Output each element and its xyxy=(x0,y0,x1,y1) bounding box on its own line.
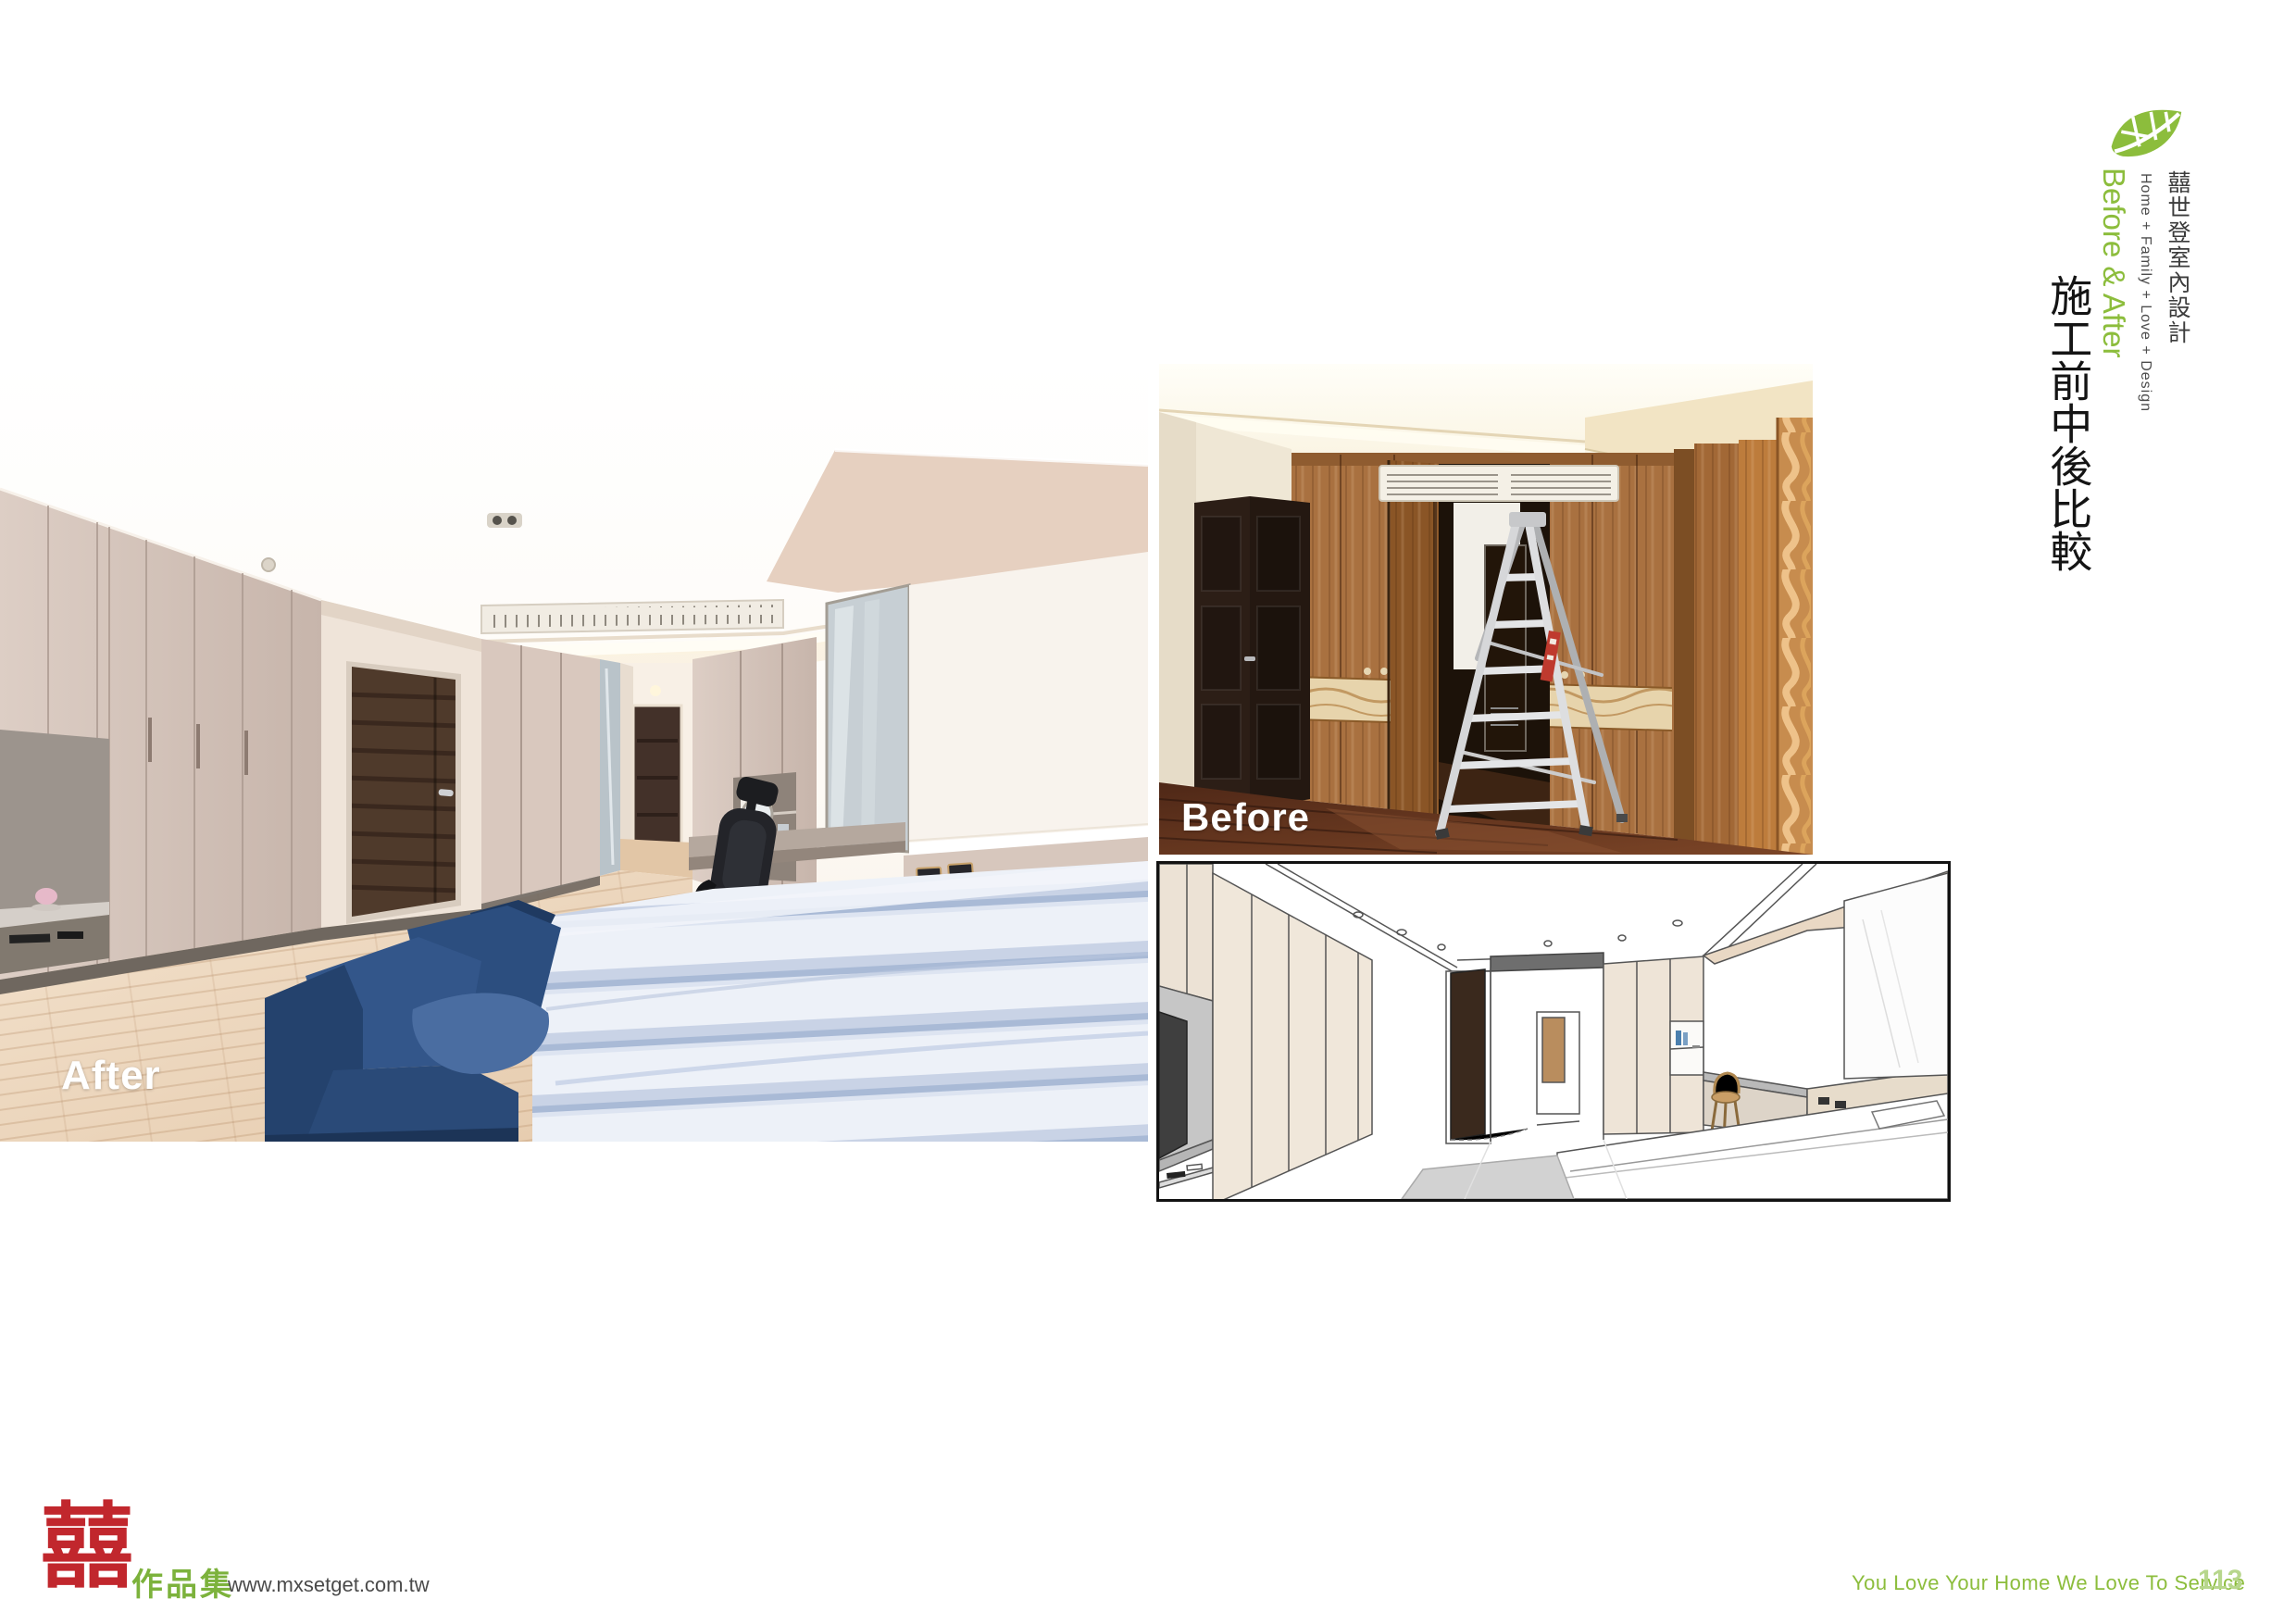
section-title-english: Before & After xyxy=(2096,168,2131,357)
after-photo-image xyxy=(0,361,1148,1142)
page-number: 113 xyxy=(2198,1565,2242,1596)
website-url: www.mxsetget.com.tw xyxy=(228,1573,430,1597)
after-headboard-wall xyxy=(909,552,1148,852)
after-tall-mirror xyxy=(827,585,909,852)
after-room-door xyxy=(346,661,461,924)
brand-name-chinese: 囍世登室內設計 xyxy=(2161,170,2194,345)
after-tv-niche xyxy=(0,730,109,974)
carved-swirl-wall xyxy=(1778,418,1813,855)
logo-caption: 作品集 xyxy=(131,1559,234,1605)
door-handle xyxy=(438,789,454,796)
section-title-chinese: 施工前中後比較 xyxy=(2046,274,2090,572)
after-mid-wardrobe xyxy=(481,639,600,904)
leaf-logo-icon xyxy=(2103,104,2189,163)
before-photo-label: Before xyxy=(1181,795,1310,840)
before-photo-image xyxy=(1159,364,1813,855)
before-dark-door xyxy=(1194,496,1310,810)
after-photo-label: After xyxy=(61,1053,161,1099)
door-handle xyxy=(1244,656,1255,661)
double-happiness-logo: 囍 xyxy=(41,1500,133,1593)
before-photo: Before xyxy=(1159,364,1813,855)
brand-tagline-english: Home + Family + Love + Design xyxy=(2137,173,2153,412)
sketch-cabinets xyxy=(1603,956,1703,1134)
after-ac-vent xyxy=(481,600,783,633)
portfolio-page: After xyxy=(0,0,2296,1624)
concept-sketch xyxy=(1156,861,1951,1202)
footer-slogan: You Love Your Home We Love To Service xyxy=(1852,1571,2245,1595)
before-right-walls xyxy=(1674,418,1813,855)
concept-sketch-image xyxy=(1159,864,1948,1199)
before-ac-vent xyxy=(1379,466,1618,501)
before-open-door xyxy=(1389,460,1439,845)
after-photo: After xyxy=(0,361,1148,1142)
after-hallway xyxy=(620,663,693,878)
